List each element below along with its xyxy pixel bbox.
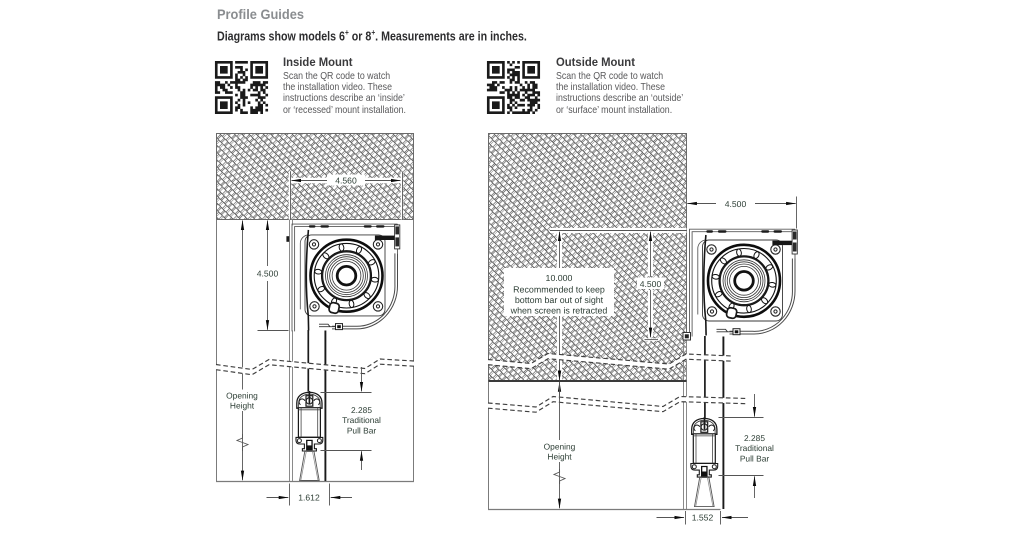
svg-text:2.285: 2.285 (351, 405, 372, 415)
svg-text:10.000: 10.000 (546, 273, 573, 283)
svg-text:4.560: 4.560 (335, 175, 357, 185)
svg-text:1.612: 1.612 (298, 492, 320, 502)
svg-text:Recommended to keep: Recommended to keep (513, 285, 605, 295)
svg-text:Opening: Opening (544, 441, 576, 451)
svg-text:Pull Bar: Pull Bar (740, 453, 770, 463)
svg-text:2.285: 2.285 (744, 433, 765, 443)
svg-text:Traditional: Traditional (735, 443, 774, 453)
svg-text:Height: Height (230, 401, 255, 411)
svg-text:4.500: 4.500 (640, 279, 662, 289)
svg-text:bottom bar out of sight: bottom bar out of sight (515, 295, 604, 305)
svg-text:1.552: 1.552 (692, 513, 714, 523)
svg-text:Opening: Opening (226, 390, 258, 400)
svg-text:Height: Height (547, 452, 572, 462)
svg-text:when screen is retracted: when screen is retracted (510, 306, 608, 316)
svg-text:Traditional: Traditional (342, 415, 381, 425)
svg-text:Pull Bar: Pull Bar (347, 425, 377, 435)
svg-text:4.500: 4.500 (725, 199, 747, 209)
svg-text:4.500: 4.500 (257, 269, 279, 279)
